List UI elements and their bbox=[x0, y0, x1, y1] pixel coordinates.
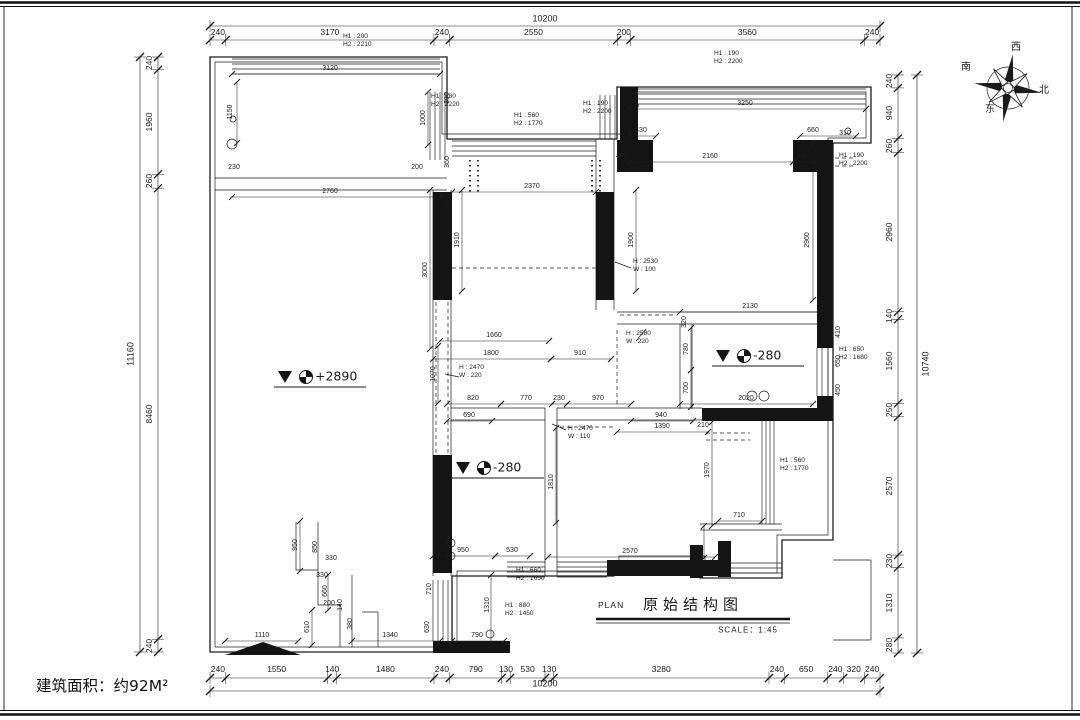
building-area-label: 建筑面积：约92M² bbox=[36, 674, 168, 696]
compass-icon bbox=[970, 50, 1047, 127]
pipe-circles bbox=[227, 116, 851, 638]
page-title: 原始结构图 bbox=[643, 594, 743, 615]
scale-label: SCALE：1:45 bbox=[718, 625, 778, 636]
plan-word: PLAN bbox=[598, 600, 624, 610]
level-marker-icon bbox=[274, 371, 366, 388]
level-marker-icon bbox=[712, 350, 804, 367]
level-marker-icon bbox=[452, 462, 544, 479]
drawing-sheet: 1020024031702402550200356024010200240155… bbox=[0, 0, 1080, 720]
floor-plan-svg bbox=[0, 0, 1080, 720]
window-lines bbox=[232, 59, 866, 641]
sheet-frame bbox=[0, 3, 1080, 715]
title-underline bbox=[596, 619, 790, 623]
entry-triangle bbox=[225, 642, 301, 655]
